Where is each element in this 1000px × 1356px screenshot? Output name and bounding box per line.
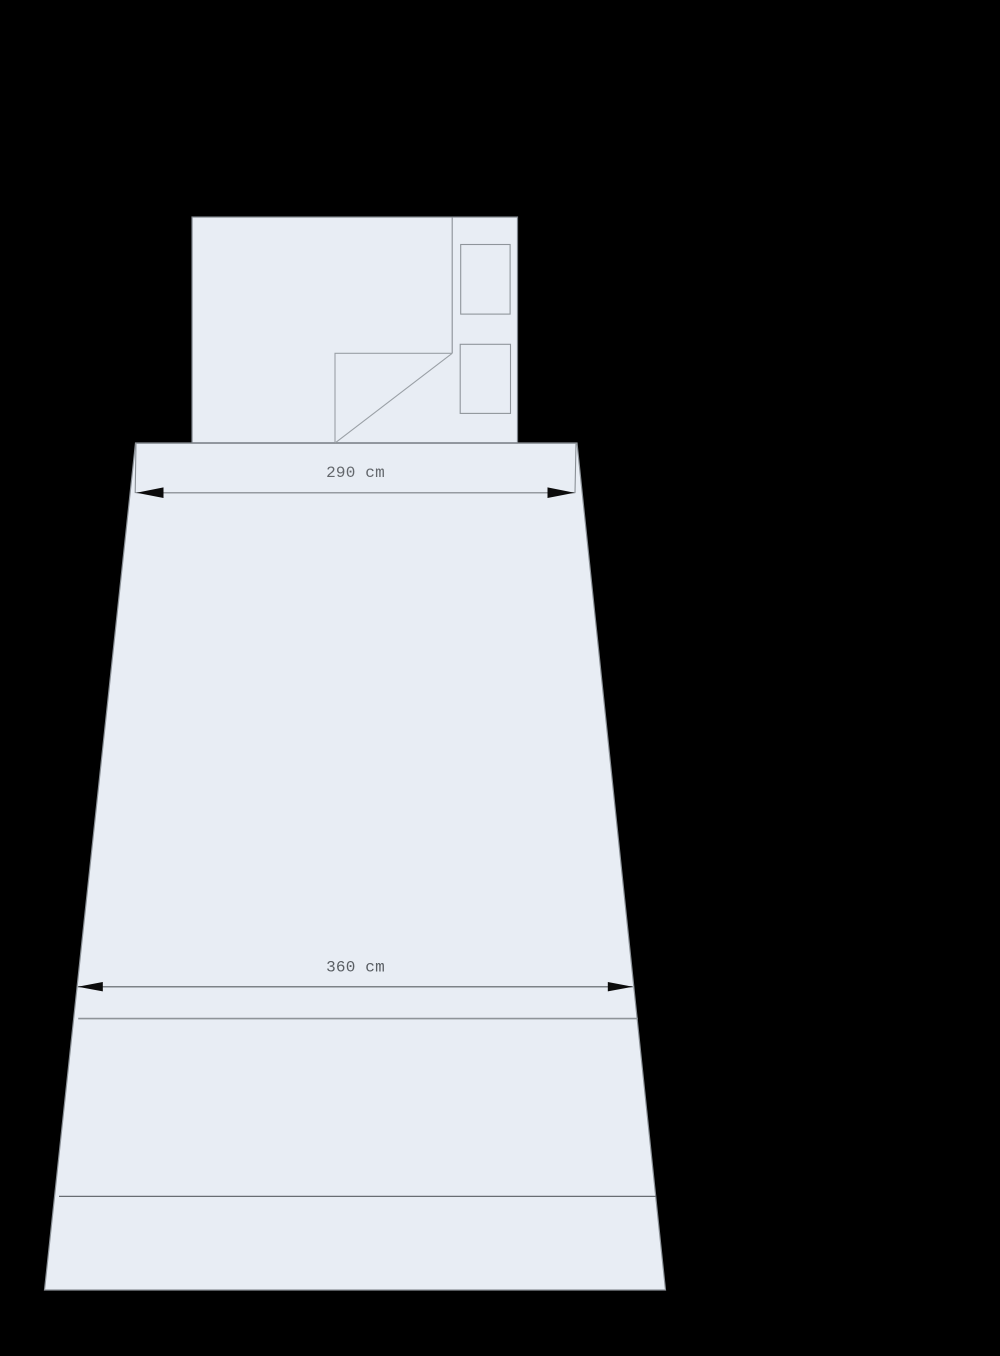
- svg-text:290 cm: 290 cm: [326, 464, 385, 482]
- svg-text:360 cm: 360 cm: [326, 959, 385, 977]
